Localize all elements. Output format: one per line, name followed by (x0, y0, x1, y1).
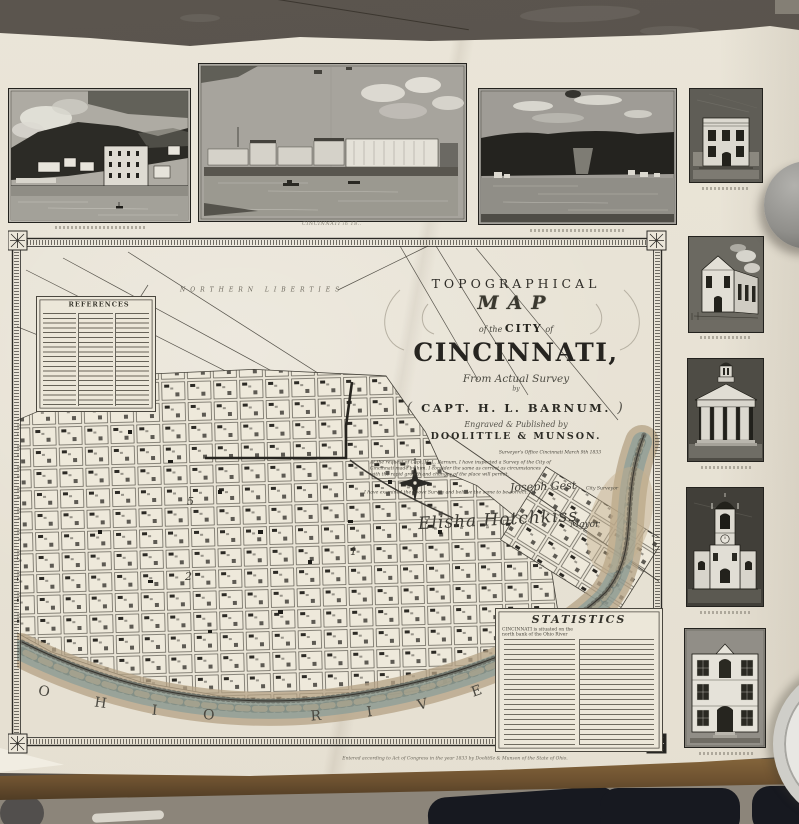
statistics-column (504, 639, 575, 745)
flourish-right: ) (617, 400, 625, 416)
map-title-barnum: ( CAPT. H. L. BARNUM. ) (376, 400, 656, 416)
map-title-topographical: TOPOGRAPHICAL (376, 276, 656, 291)
photo-of-antique-map: CINCINNATI in 18.. (0, 0, 799, 824)
building-engraving-tower-church-art (686, 487, 764, 607)
certification-body-1: At the request of Capt. H. L. Barnum, I … (370, 460, 670, 465)
statistics-lead: CINCINNATI is situated on the north bank… (502, 627, 577, 637)
map-title-map: MAP (376, 292, 656, 314)
map-title-of-the-city-of: of the CITY of (376, 322, 656, 335)
view-caption: CINCINNATI in 18.. (277, 221, 387, 227)
title-of: of (545, 325, 553, 334)
map-title-cincinnati: CINCINNATI, (376, 338, 656, 367)
statistics-columns (502, 639, 656, 745)
border-rosette-icon (8, 231, 27, 250)
caption-smudge (699, 752, 753, 755)
references-legend: REFERENCES (36, 296, 156, 412)
building-engraving-church-art (688, 236, 764, 333)
flourish-left: ( (407, 400, 415, 416)
building-engraving-bank (689, 88, 763, 187)
border-rosette-icon (8, 734, 27, 753)
legend-column (78, 313, 112, 406)
shadow-under-table (0, 796, 44, 824)
table-edge-line (276, 0, 469, 30)
certification-body-3: with the rapid growth and changes of the… (370, 472, 670, 477)
copyright-imprint: Entered according to Act of Congress in … (268, 756, 642, 761)
map-title-cartouche: TOPOGRAPHICAL MAP of the CITY of CINCINN… (376, 276, 656, 442)
engraved-view-city-panorama (198, 63, 467, 226)
legend-column (43, 313, 76, 406)
caption-smudge (700, 336, 752, 339)
engraved-view-hillside (8, 88, 191, 227)
caption-smudge (702, 187, 750, 190)
view-caption-text: CINCINNATI in 18.. (277, 221, 387, 227)
engraved-view-hillside-art (8, 88, 191, 223)
mayor-cert-line: I have examined the above Survey and bel… (364, 490, 664, 495)
statistics-title: STATISTICS (501, 613, 657, 626)
district-label: NORTHERN LIBERTIES (180, 286, 340, 293)
statistics-panel: STATISTICS CINCINNATI is situated on the… (495, 608, 663, 752)
engraved-view-city-panorama-art (198, 63, 467, 222)
legend-columns (42, 313, 150, 406)
table-surface-smudge (180, 14, 220, 22)
border-rosette-icon (647, 231, 666, 250)
ward-number: 2 (184, 570, 192, 583)
barnum-text: CAPT. H. L. BARNUM. (421, 401, 611, 415)
building-engraving-church (688, 236, 764, 337)
city-map: OHIO RIVER 5 2 1 (8, 230, 668, 764)
title-city: CITY (505, 322, 543, 335)
map-title-survey: From Actual Survey (376, 373, 656, 385)
mayor-title: Mayor (570, 520, 599, 530)
surveyor-office-line: Surveyor's Office Cincinnati March 9th 1… (400, 450, 700, 455)
engraved-view-river-mouth (478, 88, 677, 229)
building-engraving-college (684, 628, 766, 752)
ward-number: 1 (350, 545, 357, 558)
caption-smudge (701, 466, 751, 469)
paper-sheet: CINCINNATI in 18.. (0, 0, 799, 824)
map-title-by: by (376, 385, 656, 392)
map-title-engraved: Engraved & Published by (376, 420, 656, 429)
engraved-view-river-mouth-art (478, 88, 677, 225)
legend-title: REFERENCES (40, 301, 158, 309)
wall-corner-patch (775, 0, 799, 14)
building-engraving-college-art (684, 628, 766, 748)
map-title-doolittle-munson: DOOLITTLE & MUNSON. (376, 431, 656, 442)
certification-body-2: Cincinnati made by him. I consider the s… (370, 466, 670, 471)
statistics-column (579, 639, 654, 745)
caption-smudge (55, 226, 145, 229)
building-engraving-courthouse-art (687, 358, 764, 462)
building-engraving-tower-church (686, 487, 764, 611)
shadow-under-table (600, 788, 740, 824)
building-engraving-bank-art (689, 88, 763, 183)
legend-column (115, 313, 149, 406)
table-surface-smudge (520, 4, 640, 24)
caption-smudge (700, 611, 752, 614)
title-of-the: of the (479, 325, 502, 334)
ward-number: 5 (187, 495, 194, 508)
